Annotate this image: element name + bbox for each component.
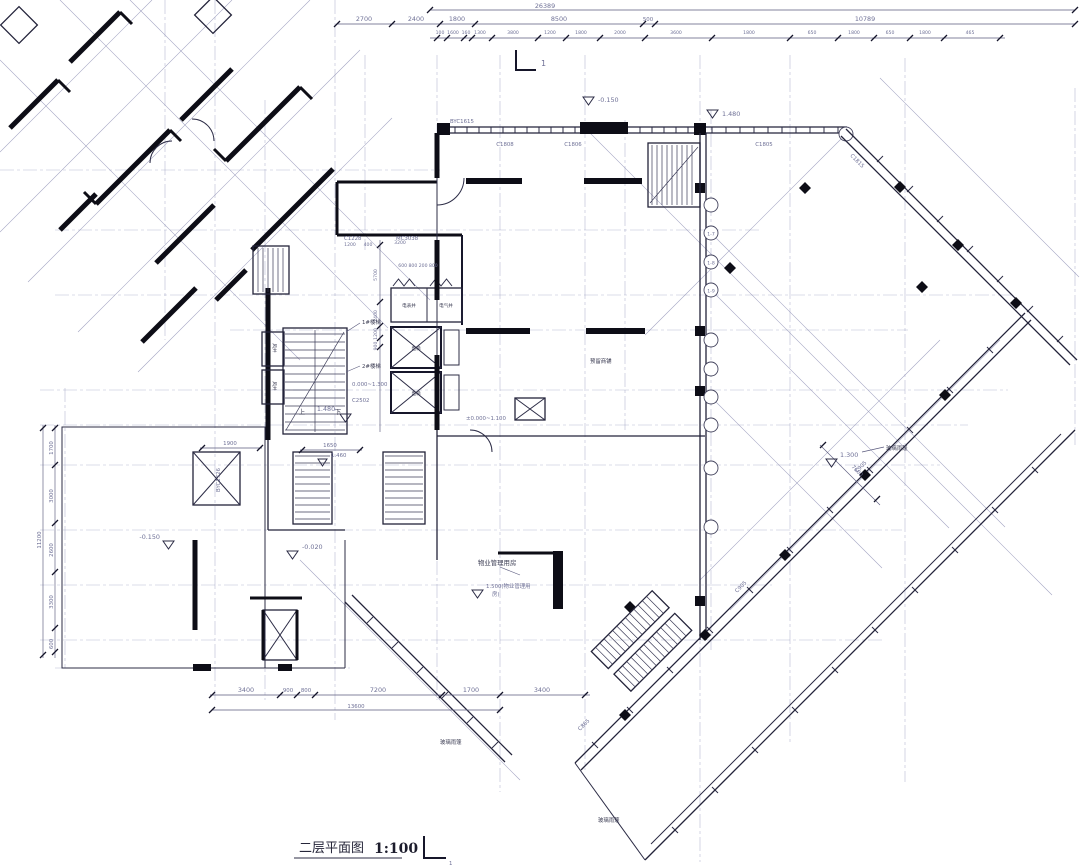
dim: 1800 xyxy=(919,30,931,36)
drawing-title: 二层平面图 xyxy=(299,841,364,856)
window-tag: C865 xyxy=(577,718,591,732)
grid-bubble-label: 1-8 xyxy=(707,261,715,267)
dim: 7200 xyxy=(370,686,386,694)
room-label: 电气井 xyxy=(439,302,453,309)
dim: 3800 xyxy=(507,30,519,36)
dim: 500 xyxy=(643,17,654,23)
dim: 3300 xyxy=(49,595,55,609)
dim: 900 xyxy=(373,342,379,351)
dim: 160 xyxy=(462,30,471,36)
dim: 2400 xyxy=(408,15,424,23)
dim: 2000 xyxy=(614,30,626,36)
room-label: 电梯 xyxy=(411,390,421,397)
window-tag: C1228 xyxy=(344,236,362,242)
grid-bubble-label: 1-7 xyxy=(707,232,715,238)
stair-down: 下 xyxy=(335,408,342,416)
window-tag: C1805 xyxy=(755,142,772,148)
dim: 3000 xyxy=(49,489,55,503)
canopy-label: 玻璃雨篷 xyxy=(886,444,908,452)
stair-label: 2#楼梯 xyxy=(362,362,381,370)
floor-plan-drawing: 26389 2700 2400 1800 8500 500 10789 100 … xyxy=(0,0,1080,867)
room-label: 物业管理用房 xyxy=(478,558,516,567)
dim: 1700 xyxy=(49,441,55,455)
stair-label: 1#楼梯 xyxy=(362,318,381,326)
corner-room xyxy=(195,0,232,33)
dim: 1200 xyxy=(544,30,556,36)
dim: 1600 xyxy=(447,30,459,36)
window-tag: C1806 xyxy=(564,142,582,148)
window-tag: C2502 xyxy=(352,398,369,404)
level: -0.150 xyxy=(598,96,619,104)
dim-left-overall: 11200 xyxy=(37,531,43,549)
dim: 650 xyxy=(808,30,817,36)
window-tag: C1808 xyxy=(496,142,514,148)
section-mark: 1 xyxy=(449,861,452,867)
dim: 3600 xyxy=(670,30,682,36)
window-tag: BYC1615 xyxy=(450,119,474,125)
text-layer: 26389 2700 2400 1800 8500 500 10789 100 … xyxy=(37,2,974,867)
dim: 10789 xyxy=(855,15,875,23)
room-label: 风井 xyxy=(271,381,278,391)
dim: 8500 xyxy=(551,15,567,23)
drawing-scale: 1:100 xyxy=(374,841,418,857)
dim: 1800 xyxy=(575,30,587,36)
southeast-wing xyxy=(575,129,1077,860)
dim: 465 xyxy=(966,30,975,36)
level-range: ±0.000~1.100 xyxy=(466,416,506,422)
room-label: 预留商铺 xyxy=(590,357,612,365)
level: -0.150 xyxy=(139,533,160,541)
core xyxy=(253,182,462,530)
dim: 600 xyxy=(49,638,55,649)
dim: 400 xyxy=(364,242,373,248)
level: -0.020 xyxy=(302,543,323,551)
dim: 1800 xyxy=(449,15,465,23)
dim: 1800 xyxy=(848,30,860,36)
dim: 900 xyxy=(283,688,294,694)
level: 1.300 xyxy=(840,451,858,459)
room-label: 电梯 xyxy=(411,345,421,352)
level: 1.480 xyxy=(317,405,335,413)
floor-plan-sheet: 26389 2700 2400 1800 8500 500 10789 100 … xyxy=(0,0,1080,867)
dim: 600 800 200 800 xyxy=(398,263,438,269)
dim: 1900 xyxy=(223,441,237,447)
dim: 2700 xyxy=(356,15,372,23)
dim: 3400 xyxy=(534,686,550,694)
canopy-label: 玻璃雨篷 xyxy=(598,816,620,824)
dim: 800 xyxy=(301,688,312,694)
level: 1.480 xyxy=(722,110,740,118)
grid-bubble-label: 1-9 xyxy=(707,289,715,295)
level-range: 0.000~1.300 xyxy=(352,382,388,388)
dim: 1700 xyxy=(463,686,479,694)
canopy-label: 玻璃雨篷 xyxy=(440,738,462,746)
dim: 650 xyxy=(886,30,895,36)
level: 房) xyxy=(492,590,500,598)
dim: 1650 xyxy=(323,443,337,449)
window-tag: BYC1726 xyxy=(216,467,222,491)
corner-room xyxy=(1,7,38,44)
window-tag: C1815 xyxy=(848,153,865,170)
room-label: 电表井 xyxy=(402,302,416,309)
dim-top-overall: 26389 xyxy=(535,2,555,10)
dim: 5700 xyxy=(373,269,379,281)
level: 1.500(物业管理用 xyxy=(486,582,531,590)
diagonal-stairs xyxy=(591,591,691,691)
window-tag: MC3038 xyxy=(396,236,419,242)
section-mark: 1 xyxy=(541,59,546,68)
stair-up: 上 xyxy=(299,407,306,416)
room-label: 风井 xyxy=(271,343,278,353)
dim-bottom-overall: 13600 xyxy=(347,704,365,710)
dim: 1200 xyxy=(373,328,379,340)
level: 1.460 xyxy=(331,453,347,459)
dim: 1800 xyxy=(743,30,755,36)
dim: 100 xyxy=(436,30,445,36)
stair-1 xyxy=(253,246,289,294)
dim: 1300 xyxy=(474,30,486,36)
dim: 1200 xyxy=(344,242,356,248)
dim: 3400 xyxy=(238,686,254,694)
dim: 2600 xyxy=(49,543,55,557)
